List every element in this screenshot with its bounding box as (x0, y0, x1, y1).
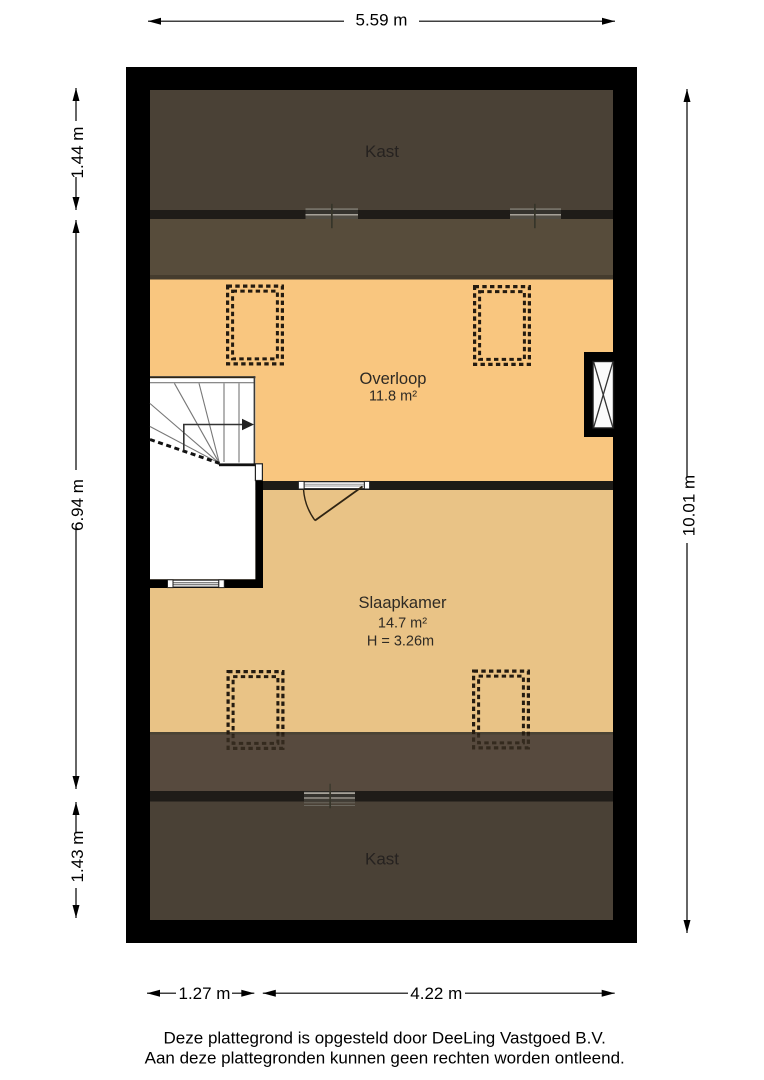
svg-text:Slaapkamer: Slaapkamer (358, 594, 447, 612)
svg-text:5.59 m: 5.59 m (356, 10, 408, 29)
svg-text:1.27 m: 1.27 m (179, 984, 231, 1003)
svg-text:Overloop: Overloop (360, 370, 427, 388)
svg-text:1.44 m: 1.44 m (68, 127, 87, 179)
svg-text:14.7 m²: 14.7 m² (378, 616, 427, 632)
svg-text:Deze plattegrond is opgesteld: Deze plattegrond is opgesteld door DeeLi… (164, 1028, 606, 1047)
svg-text:Aan deze plattegronden kunnen: Aan deze plattegronden kunnen geen recht… (145, 1049, 625, 1068)
svg-text:Kast: Kast (365, 850, 399, 869)
svg-text:10.01 m: 10.01 m (679, 475, 698, 536)
svg-text:1.43 m: 1.43 m (68, 831, 87, 883)
svg-text:H = 3.26m: H = 3.26m (367, 634, 434, 650)
svg-text:11.8 m²: 11.8 m² (369, 389, 417, 405)
svg-text:6.94 m: 6.94 m (68, 479, 87, 531)
svg-text:Kast: Kast (365, 142, 399, 161)
svg-text:4.22 m: 4.22 m (410, 984, 462, 1003)
